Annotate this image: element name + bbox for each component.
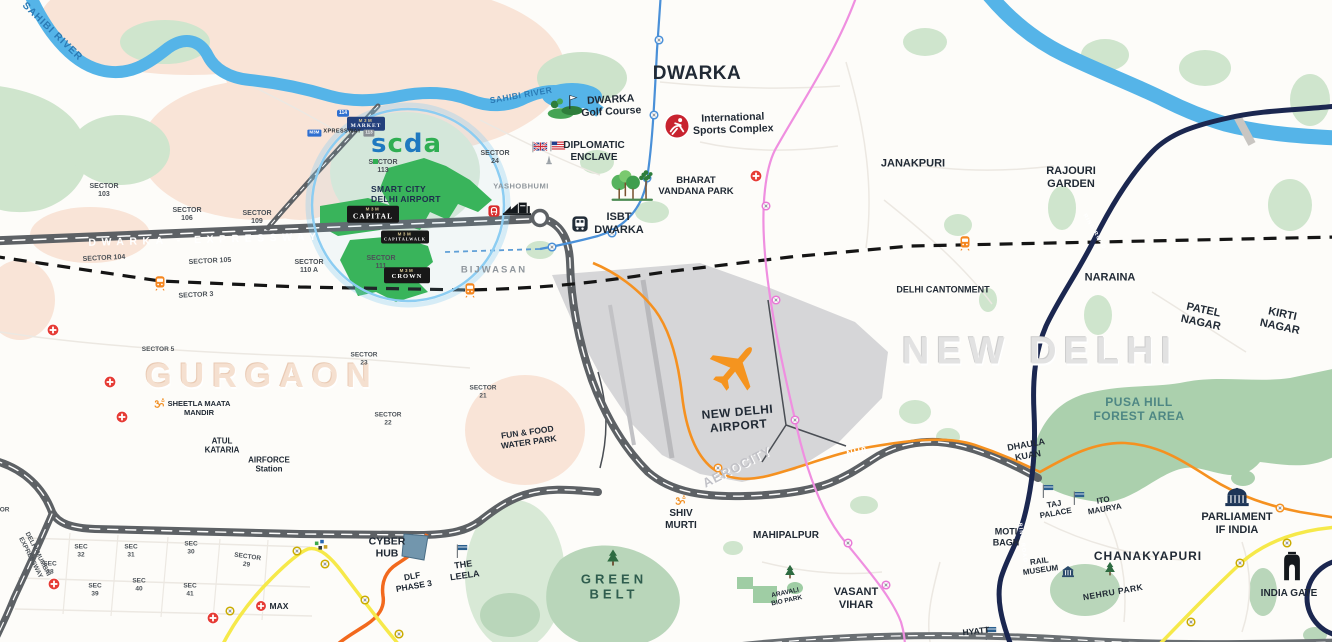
- delhi-cantonment-label: DELHI CANTONMENT: [896, 285, 989, 296]
- sector-109-label: SECTOR109: [242, 210, 271, 227]
- janakpuri-label: JANAKPURI: [881, 158, 945, 171]
- dwarka-golf-course-label: DWARKAGolf Course: [580, 92, 641, 120]
- hospital-icon: [47, 324, 60, 337]
- cyber-hub-label: CYBERHUB: [369, 536, 406, 561]
- moti-bagh-label: MOTIBAGH: [993, 526, 1020, 547]
- station-marker: [881, 580, 891, 590]
- max-hospital-label: MAX: [270, 601, 289, 611]
- parliament-label: PARLIAMENTIF INDIA: [1201, 511, 1272, 537]
- scda-logo-sub2: DELHI AIRPORT: [371, 194, 442, 204]
- sec-30-label: SEC30: [184, 540, 197, 555]
- station-marker: [547, 242, 557, 252]
- tree-icon: [785, 565, 796, 579]
- station-marker: [771, 295, 781, 305]
- green-belt-label: GREENBELT: [581, 572, 647, 603]
- station-marker: [654, 35, 664, 45]
- vasant-vihar-label: VASANTVIHAR: [834, 586, 878, 612]
- train-icon: [154, 276, 166, 291]
- hospital-icon: [207, 612, 220, 625]
- map-canvas: [0, 0, 1332, 642]
- sec-32-label: SEC32: [74, 543, 87, 558]
- sector-5-label: SECTOR 5: [142, 346, 174, 354]
- om-icon: [675, 495, 688, 508]
- m3m-capitalwalk-badge: M3MCAPITALWALK: [381, 230, 429, 243]
- station-marker: [1282, 538, 1292, 548]
- hospital-icon: [750, 170, 763, 183]
- m3m-crown-badge: M3MCROWN: [384, 267, 430, 283]
- station-marker: [1235, 558, 1245, 568]
- bharat-vandana-park-label: BHARATVANDANA PARK: [658, 175, 733, 197]
- station-marker: [1275, 503, 1285, 513]
- scda-logo-sub1: SMART CITY: [371, 184, 442, 194]
- sector-106-label: SECTOR106: [172, 207, 201, 224]
- india-gate-label: INDIA GATE: [1261, 588, 1318, 600]
- sector-33-label: SECTOR33: [0, 506, 9, 521]
- isbt-dwarka-label: ISBTDWARKA: [594, 211, 644, 237]
- station-marker: [649, 110, 659, 120]
- station-marker: [790, 415, 800, 425]
- station-marker: [360, 595, 370, 605]
- sector-21-label: SECTOR21: [470, 384, 497, 399]
- sector-110a-label: SECTOR110 A: [294, 259, 323, 276]
- station-marker: [394, 629, 404, 639]
- intl-sports-complex-label: InternationalSports Complex: [692, 110, 773, 138]
- hospital-icon: [255, 600, 267, 612]
- station-marker: [292, 546, 302, 556]
- new-delhi-watermark: NEW DELHI: [902, 330, 1178, 375]
- cyber-hub-parcel: [402, 534, 428, 560]
- landmark-cluster-icon: [314, 540, 330, 553]
- sector-103-label: SECTOR103: [89, 183, 118, 200]
- sec-38-label: SEC38: [43, 560, 56, 575]
- mahipalpur-label: MAHIPALPUR: [753, 530, 819, 542]
- atul-kataria-label: ATULKATARIA: [205, 437, 240, 456]
- gurgaon-watermark: GURGAON: [145, 356, 379, 396]
- hotel-flag-icon: [456, 544, 469, 559]
- station-marker: [320, 559, 330, 569]
- station-marker: [843, 538, 853, 548]
- bus-icon: [572, 216, 589, 233]
- flag-uk-icon: [532, 141, 548, 153]
- pusa-hill-forest-label: PUSA HILLFOREST AREA: [1093, 395, 1184, 423]
- monument-icon: [544, 156, 555, 167]
- station-marker: [225, 606, 235, 616]
- shiv-murti-label: SHIVMURTI: [665, 508, 697, 532]
- station-marker: [761, 201, 771, 211]
- scda-logo-word: scda: [371, 131, 442, 183]
- sector-23-label: SECTOR23: [351, 351, 378, 366]
- sec-40-label: SEC40: [132, 577, 145, 592]
- train-icon: [464, 283, 476, 298]
- sports-icon: [664, 113, 691, 140]
- hospital-icon: [104, 376, 117, 389]
- museum-icon: [1061, 566, 1075, 578]
- yamuna-river: [985, 0, 1332, 138]
- diplomatic-enclave-label: DIPLOMATICENCLAVE: [563, 140, 624, 164]
- airforce-station-label: AIRFORCEStation: [248, 456, 290, 475]
- hospital-icon: [48, 578, 61, 591]
- the-leela-label: THELEELA: [448, 557, 480, 582]
- naraina-label: NARAINA: [1085, 272, 1136, 285]
- sec-31-label: SEC31: [124, 543, 137, 558]
- sec-41-label: SEC41: [183, 582, 196, 597]
- bijwasan-label: BIJWASAN: [461, 264, 527, 275]
- tree-icon: [1105, 562, 1116, 576]
- train-icon: [959, 236, 971, 251]
- station-marker: [1186, 617, 1196, 627]
- parliament-icon: [1224, 487, 1250, 508]
- roundabout: [533, 211, 548, 226]
- sector-22-label: SECTOR22: [375, 411, 402, 426]
- sector-24-label: SECTOR24: [480, 150, 509, 167]
- convention-centre-icon: [502, 197, 532, 217]
- om-icon: [154, 398, 167, 411]
- chanakyapuri-label: CHANAKYAPURI: [1094, 549, 1202, 563]
- india-gate-icon: [1281, 552, 1303, 581]
- hotel-flag-icon: [1073, 491, 1086, 506]
- sheetla-maata-mandir-label: SHEETLA MAATAMANDIR: [168, 400, 231, 418]
- m3m-capital-badge: M3MCAPITAL: [347, 206, 399, 223]
- metro-icon: [488, 205, 500, 217]
- yashobhumi-label: YASHOBHUMI: [493, 183, 549, 192]
- dwarka-area-label: DWARKA: [653, 63, 742, 85]
- trees-icon: [610, 166, 656, 203]
- golf-icon: [547, 92, 585, 119]
- hospital-icon: [116, 411, 129, 424]
- hotel-flag-icon: [1042, 484, 1055, 499]
- sec-39-label: SEC39: [88, 582, 101, 597]
- rajouri-garden-label: RAJOURIGARDEN: [1046, 165, 1096, 191]
- tree-icon: [607, 550, 620, 567]
- m3m-xpressway-badge: M3MXPRESSWAY113: [307, 130, 374, 137]
- location-map: SAHIBI RIVERSAHIBI RIVERDWARKADWARKAGolf…: [0, 0, 1332, 642]
